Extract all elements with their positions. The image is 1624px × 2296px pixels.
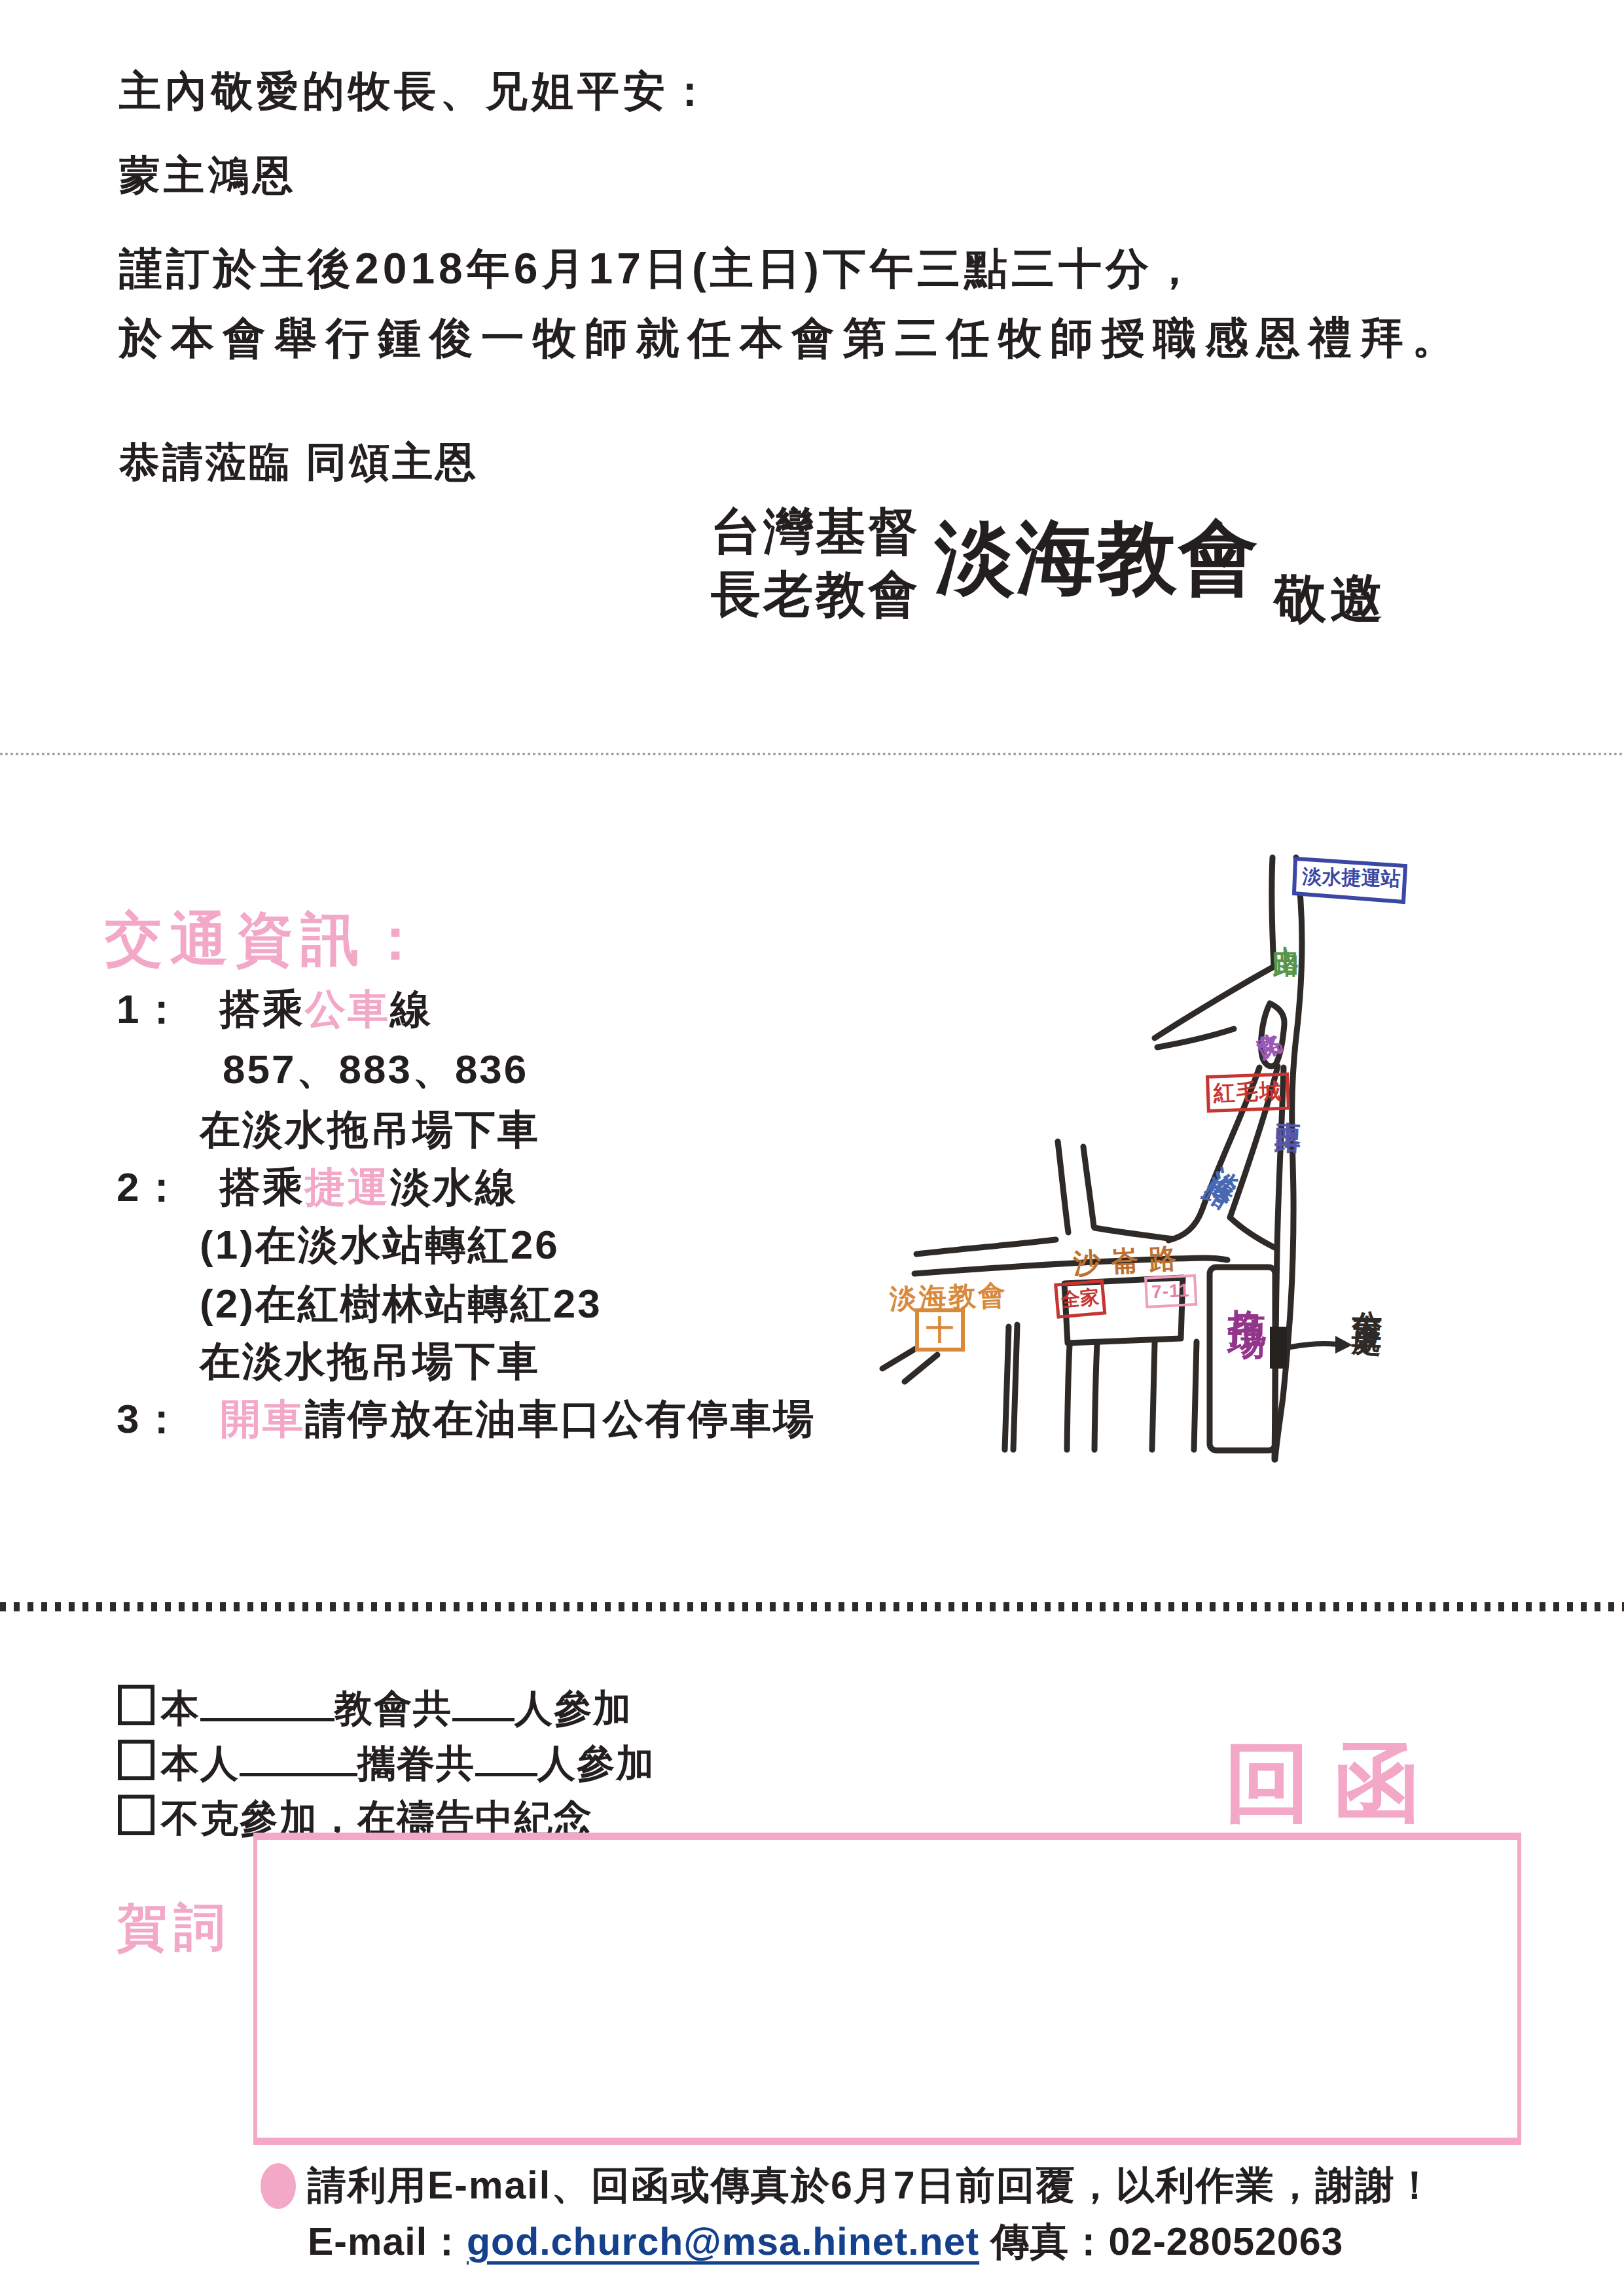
event-date-line: 謹訂於主後2018年6月17日(主日)下午三點三十分， bbox=[119, 240, 1200, 298]
grace-line: 蒙主鴻恩 bbox=[119, 148, 297, 203]
reply-option-text: 人參加 bbox=[537, 1742, 655, 1784]
hand-drawn-map: 淡水捷運站 中山路 文化路 紅毛城 中正路 淡海路 沙崙路 全家 7-11 拖吊… bbox=[877, 821, 1538, 1482]
transport-highlight: 開車 bbox=[220, 1396, 305, 1441]
reply-option-text: 本 bbox=[161, 1687, 200, 1729]
reply-option-text: 攜眷共 bbox=[357, 1742, 475, 1784]
event-description-line: 於本會舉行鍾俊一牧師就任本會第三任牧師授職感恩禮拜。 bbox=[119, 309, 1464, 368]
map-label-family-mart: 全家 bbox=[1054, 1279, 1106, 1318]
fax-label: 傳真： bbox=[991, 2220, 1109, 2263]
map-label-seven-eleven: 7-11 bbox=[1144, 1274, 1197, 1308]
bullet-icon bbox=[261, 2163, 296, 2209]
transport-line: 3：開車請停放在油車口公有停車場 bbox=[117, 1391, 816, 1446]
reply-title: 回函 bbox=[1224, 1725, 1444, 1842]
email-label: E-mail： bbox=[308, 2220, 467, 2263]
transport-line: 2：搭乘捷運淡水線 bbox=[117, 1160, 518, 1215]
transport-line: 在淡水拖吊場下車 bbox=[200, 1334, 540, 1389]
reply-checkbox[interactable] bbox=[118, 1685, 154, 1725]
reply-option-row: 本人攜眷共人參加 bbox=[118, 1738, 655, 1789]
reply-checkbox[interactable] bbox=[118, 1740, 154, 1780]
dotted-divider bbox=[0, 753, 1624, 755]
email-link[interactable]: god.church@msa.hinet.net bbox=[467, 2220, 979, 2263]
transport-text: 在淡水拖吊場下車 bbox=[200, 1338, 540, 1384]
transport-text: 線 bbox=[390, 986, 433, 1031]
transport-text: 857、883、836 bbox=[223, 1047, 528, 1092]
fill-in-blank[interactable] bbox=[452, 1684, 514, 1721]
map-label-tow-yard: 拖吊場 bbox=[1222, 1278, 1274, 1299]
transport-text: 在淡水拖吊場下車 bbox=[200, 1107, 540, 1152]
church-cross-icon: 十 bbox=[915, 1308, 965, 1352]
fill-in-blank[interactable] bbox=[475, 1739, 537, 1776]
fill-in-blank[interactable] bbox=[240, 1739, 357, 1776]
transport-highlight: 公車 bbox=[305, 986, 390, 1031]
dashed-cut-divider bbox=[0, 1602, 1624, 1611]
greeting-line: 主內敬愛的牧長、兄姐平安： bbox=[119, 63, 715, 120]
transport-text: 1： bbox=[117, 982, 220, 1037]
invite-word: 敬邀 bbox=[1274, 564, 1386, 635]
transport-highlight: 捷運 bbox=[305, 1164, 390, 1210]
transport-line: (1)在淡水站轉紅26 bbox=[200, 1217, 560, 1272]
reply-option-text: 人參加 bbox=[514, 1687, 632, 1729]
map-roads-drawing bbox=[877, 821, 1538, 1482]
reply-checkbox[interactable] bbox=[118, 1795, 154, 1835]
transport-text: 搭乘 bbox=[220, 986, 305, 1031]
transport-text: (2)在紅樹林站轉紅23 bbox=[200, 1281, 602, 1326]
church-name: 淡海教會 bbox=[935, 505, 1259, 613]
transport-text: 2： bbox=[117, 1160, 220, 1215]
transport-text: (1)在淡水站轉紅26 bbox=[200, 1222, 560, 1267]
inviter-org-line1: 台灣基督 bbox=[711, 499, 920, 566]
congrats-label: 賀詞 bbox=[117, 1893, 232, 1962]
transport-line: 1：搭乘公車線 bbox=[117, 982, 433, 1037]
transport-text: 請停放在油車口公有停車場 bbox=[305, 1396, 816, 1441]
transport-line: 857、883、836 bbox=[223, 1042, 528, 1097]
transport-line: 在淡水拖吊場下車 bbox=[200, 1102, 540, 1157]
transport-line: (2)在紅樹林站轉紅23 bbox=[200, 1276, 602, 1331]
transport-text: 3： bbox=[117, 1391, 220, 1446]
map-label-bus-stop: 公車下車處 bbox=[1346, 1286, 1388, 1404]
transport-text: 淡水線 bbox=[390, 1164, 518, 1210]
closing-line: 恭請蒞臨 同頌主恩 bbox=[119, 435, 478, 490]
transport-title: 交通資訊： bbox=[105, 901, 432, 978]
fill-in-blank[interactable] bbox=[200, 1684, 334, 1721]
bus-stop-marker bbox=[1270, 1327, 1287, 1369]
reply-option-row: 本教會共人參加 bbox=[118, 1683, 632, 1734]
arrow-icon bbox=[1291, 1336, 1352, 1354]
fax-number: 02-28052063 bbox=[1109, 2220, 1344, 2263]
invitation-page: 主內敬愛的牧長、兄姐平安： 蒙主鴻恩 謹訂於主後2018年6月17日(主日)下午… bbox=[0, 0, 1624, 2296]
reply-option-text: 教會共 bbox=[334, 1687, 452, 1729]
map-label-mrt-station: 淡水捷運站 bbox=[1302, 863, 1401, 893]
transport-text: 搭乘 bbox=[220, 1164, 305, 1210]
congrats-writing-box[interactable] bbox=[253, 1833, 1521, 2145]
inviter-org-line2: 長老教會 bbox=[711, 562, 920, 629]
map-label-zhongshan-road: 中山路 bbox=[1269, 925, 1305, 933]
footer-note: 請利用E-mail、回函或傳真於6月7日前回覆，以利作業，謝謝！ bbox=[308, 2160, 1435, 2212]
footer-contact-line: E-mail：god.church@msa.hinet.net 傳真：02-28… bbox=[308, 2216, 1343, 2269]
reply-option-text: 本人 bbox=[161, 1742, 240, 1784]
